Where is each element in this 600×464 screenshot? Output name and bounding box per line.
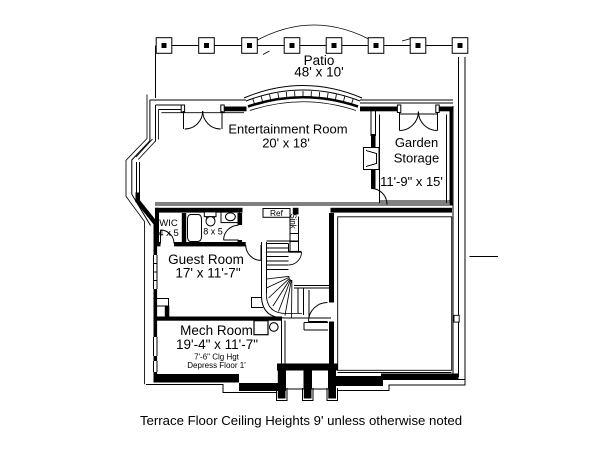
svg-text:Terrace Floor Ceiling Heights: Terrace Floor Ceiling Heights 9' unless …	[140, 413, 462, 428]
svg-text:11'-9" x 15': 11'-9" x 15'	[380, 174, 443, 189]
svg-text:Garden: Garden	[395, 135, 438, 150]
svg-text:Entertainment Room: Entertainment Room	[228, 122, 347, 137]
svg-text:Ref: Ref	[270, 208, 284, 218]
svg-text:19'-4" x 11'-7": 19'-4" x 11'-7"	[176, 337, 258, 352]
svg-text:20' x 18': 20' x 18'	[262, 136, 310, 151]
svg-text:48' x 10': 48' x 10'	[294, 65, 343, 80]
svg-text:Depress Floor 1': Depress Floor 1'	[187, 361, 246, 370]
svg-text:Mech Room: Mech Room	[180, 323, 253, 338]
svg-text:8 x 5: 8 x 5	[203, 226, 223, 236]
svg-text:Sink: Sink	[289, 214, 298, 229]
svg-text:17' x 11'-7": 17' x 11'-7"	[175, 266, 240, 281]
svg-text:Storage: Storage	[394, 151, 440, 166]
